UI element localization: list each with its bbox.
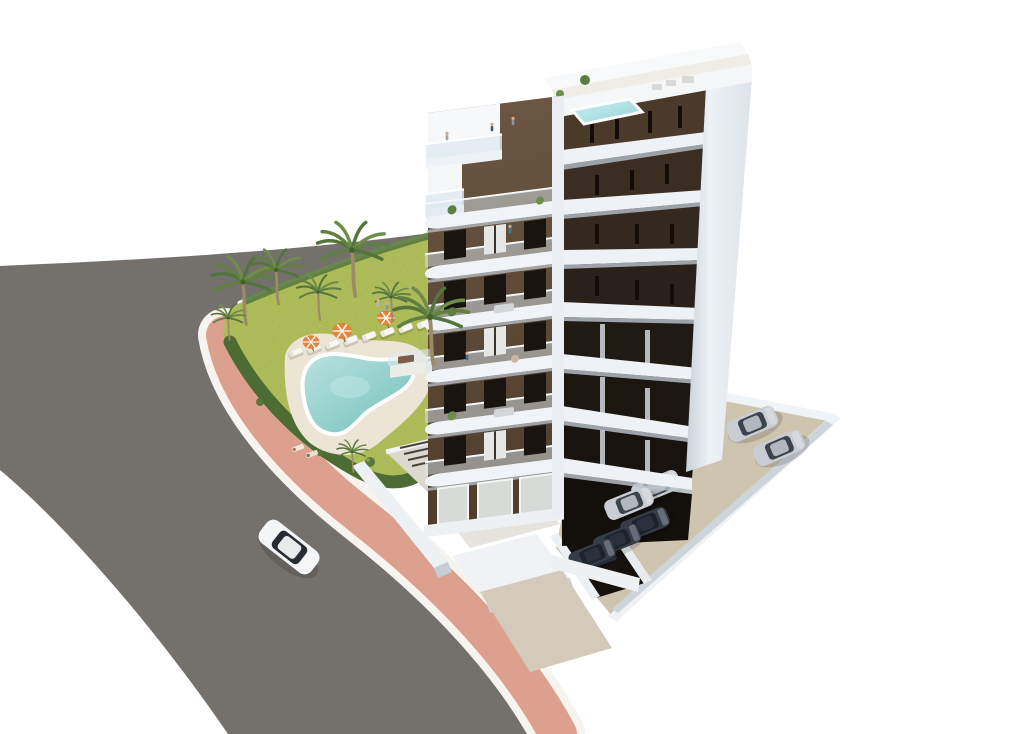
person	[490, 123, 493, 131]
person	[508, 225, 511, 233]
render-scene: Aerial 3D architectural rendering of a m…	[0, 0, 1020, 734]
person	[511, 117, 514, 125]
corner-column	[552, 95, 564, 517]
person	[376, 299, 379, 307]
architectural-render: Aerial 3D architectural rendering of a m…	[0, 0, 1020, 734]
person	[445, 132, 448, 140]
person	[385, 302, 388, 310]
person	[465, 352, 468, 360]
